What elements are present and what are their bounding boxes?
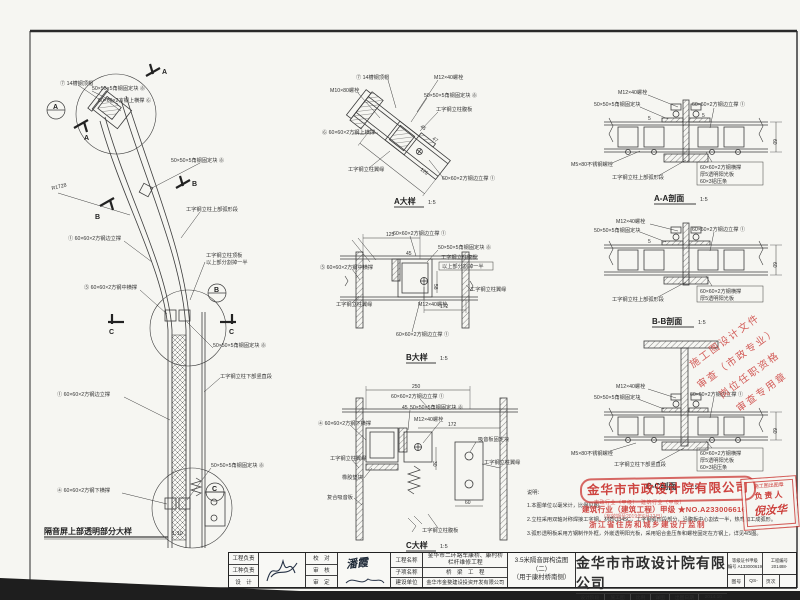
dim-5: 5 <box>702 113 705 119</box>
label: 60×60×2方钢边立撑 ① <box>393 229 446 237</box>
dim-60: 60 <box>771 139 777 145</box>
label-top-rail: 60×60×2方钢上横撑 ⑥ <box>98 96 151 104</box>
notes-header: 说明： <box>527 488 543 496</box>
signature-scribble <box>259 553 306 587</box>
section-letter: B <box>192 181 197 188</box>
check-label: 审 核 <box>306 565 337 577</box>
name-labels-column: 工程名称 子项名称 建设单位 <box>391 553 424 587</box>
strip-cell: 出图日期 <box>670 594 699 600</box>
role-labels-column: 工程负责 工种负责 设 计 <box>229 553 259 587</box>
role-label: 工种负责 <box>229 565 258 577</box>
scanned-drawing-sheet: ⑦ 14槽钢顶帽 50×50×5角钢固定块 ⑧ 60×60×2方钢上横撑 ⑥ R… <box>0 0 800 600</box>
label: 50×50×5角钢固定块 <box>594 393 641 401</box>
sheet-number-strip: 图号 QS- 页次 <box>728 575 796 587</box>
label: 工字钢立柱上部弧形段 <box>612 173 664 181</box>
label: M12×40螺栓 <box>616 217 646 225</box>
label: 橡胶垫块 <box>342 473 364 481</box>
dim-30: 30 <box>431 461 437 467</box>
field-label: 建设单位 <box>391 578 423 587</box>
label-cut-half: 以上部分割掉一半 <box>206 258 248 266</box>
stamp-signature: 倪汝华 <box>743 500 798 520</box>
label: ⑤ 60×60×2方钢中横撑 <box>320 263 373 271</box>
project-name-line1: 金华市二环路车康桥、康村桥 <box>428 553 503 560</box>
figure-title-line3: （用于康村桥南侧） <box>513 574 571 583</box>
label: ④ 60×60×2方钢下横撑 <box>318 419 371 427</box>
certificate-cells: 等级证书甲级 编号 A133000619 工程编号 201488- <box>728 553 796 575</box>
strip-cell: 2014.10 <box>699 594 727 600</box>
label-fix-low: 50×50×5角钢固定块 ⑧ <box>213 341 266 349</box>
section-aa-drawing <box>604 95 782 204</box>
name-values-column: 金华市二环路车康桥、康村桥 栏杆维修工程 桥 梁 工 程 金华市金婺建设投资开发… <box>423 553 508 587</box>
label: M5×80不锈钢螺栓 <box>571 160 614 168</box>
strip-cell <box>780 575 796 587</box>
callout-a: A <box>53 104 58 111</box>
label-arc-seg: 工字钢立柱上部弧形段 <box>186 205 238 213</box>
project-number: 工程编号 201488- <box>763 553 796 574</box>
label: 50×50×5角钢固定块 ⑧ <box>438 243 491 251</box>
label: 60×60×2方钢边立撑 ① <box>391 392 444 400</box>
dim-58: 58 <box>432 284 438 290</box>
signature-column <box>259 553 306 587</box>
detail-b-drawing <box>340 234 493 363</box>
title-block: 工程负责 工种负责 设 计 校 对 审 核 审 定 潘霞 工程名称 子项名称 建… <box>228 552 797 588</box>
drawing-release-stamp: 施工图出图章 负责人 倪汝华 <box>740 475 799 531</box>
stage-strip: 设计阶段 施工图 比例 详图 出图日期 2014.10 <box>576 594 727 600</box>
label: M12×40螺栓 <box>414 415 444 423</box>
section-letter: A <box>162 69 167 76</box>
label: M12×40螺栓 <box>618 88 648 96</box>
label: M10×80螺栓 <box>330 86 360 94</box>
callout-b: B <box>214 287 219 294</box>
label-cap: ⑦ 14槽钢顶帽 <box>60 79 93 87</box>
field-label: 工程名称 <box>391 553 423 568</box>
section-bb-title: B-B剖面 <box>652 316 682 326</box>
detail-a-drawing <box>336 80 454 207</box>
client-name: 金华市金婺建设投资开发有限公司 <box>423 578 507 587</box>
label: 60×60×2方钢边立撑 ① <box>692 225 745 233</box>
dim-60: 60 <box>465 500 471 506</box>
sub-project-name: 桥 梁 工 程 <box>423 568 507 578</box>
figure-title-cell: 3.5米隔音屏构造图 （二） （用于康村桥南侧） <box>508 553 576 587</box>
label: 60×60×2方钢横撑 <box>700 163 741 171</box>
label: 工字钢立柱翼缘 <box>330 454 366 462</box>
section-bb-scale: 1:5 <box>698 320 706 326</box>
detail-a-title: A大样 <box>394 196 416 206</box>
label: 60×3铝压条 <box>700 177 727 185</box>
dim-60: 60 <box>771 262 777 268</box>
label: 工字钢立柱翼缘 <box>336 300 372 308</box>
label-fix-mid: 50×50×5角钢固定块 ⑧ <box>171 156 224 164</box>
elevation-drawing <box>44 64 236 548</box>
dim-172: 172 <box>448 422 457 428</box>
grade-line2: 编号 A133000619 <box>728 564 762 570</box>
label: 工字钢立柱腹板 <box>436 105 473 113</box>
role-label: 设 计 <box>229 576 258 587</box>
dim-45: 45 <box>406 251 412 257</box>
label: M5×80不锈钢螺栓 <box>571 449 614 457</box>
check-labels-column: 校 对 审 核 审 定 <box>306 553 338 587</box>
grade-certificate: 等级证书甲级 编号 A133000619 <box>728 553 762 574</box>
callout-c: C <box>212 486 217 493</box>
label-radius: R1728 <box>51 182 67 192</box>
label: 复合吸音板 <box>327 493 354 501</box>
label: M12×40螺栓 <box>434 73 464 81</box>
detail-b-title: B大样 <box>406 352 428 362</box>
dim-5: 5 <box>648 239 651 245</box>
label: 工字钢立柱腹板 <box>422 526 459 534</box>
section-letter: C <box>109 329 114 336</box>
strip-cell: 图号 <box>728 575 745 587</box>
label: 工字钢立柱上部弧形段 <box>612 295 664 303</box>
label: 以上部分割掉一半 <box>442 262 484 270</box>
label-top-plate: 工字钢立柱顶板 <box>206 251 243 259</box>
label: 工字钢立柱翼缘 <box>470 285 506 293</box>
figure-title-line1: 3.5米隔音屏构造图 <box>515 557 569 566</box>
section-aa-scale: 1:5 <box>700 197 708 203</box>
label-edge-post-low: ① 60×60×2方钢边立撑 <box>57 390 110 398</box>
strip-cell: 施工图 <box>605 594 632 600</box>
company-cell: 金华市市政设计院有限公司 设计阶段 施工图 比例 详图 出图日期 2014.10 <box>576 553 728 587</box>
check-label: 审 定 <box>306 576 337 587</box>
label: 60×60×2方钢边立撑 ① <box>692 100 745 108</box>
check-signature-column: 潘霞 <box>338 553 391 587</box>
label: ⑥ 60×60×2方钢上横撑 <box>322 128 375 136</box>
label: 工字钢立柱下部竖直段 <box>614 460 666 468</box>
strip-cell: QS- <box>745 575 762 587</box>
label: 60×60×2方钢边立撑 ① <box>442 174 495 182</box>
label: 50×50×5角钢固定块 <box>594 226 641 234</box>
check-label: 校 对 <box>306 553 337 565</box>
label: 50×50×5角钢固定块 ⑧ <box>424 91 477 99</box>
label-fix-top: 50×50×5角钢固定块 ⑧ <box>92 84 145 92</box>
section-letter: B <box>95 214 100 221</box>
detail-c-title: C大样 <box>406 540 428 550</box>
elevation-texts: ⑦ 14槽钢顶帽 50×50×5角钢固定块 ⑧ 60×60×2方钢上横撑 ⑥ R… <box>44 69 272 537</box>
section-aa-title: A-A剖面 <box>654 193 684 203</box>
dim-5: 5 <box>648 116 651 122</box>
field-label: 子项名称 <box>391 568 423 578</box>
label: 50×50×5角钢固定块 <box>594 100 641 108</box>
role-label: 工程负责 <box>229 553 258 565</box>
label-edge-post-top: ① 60×60×2方钢边立撑 <box>68 234 121 242</box>
detail-c-scale: 1:5 <box>440 544 448 550</box>
section-letter: C <box>229 329 234 336</box>
label: ⑦ 14槽钢顶帽 <box>356 73 389 81</box>
dim-172: 172 <box>440 304 449 310</box>
label-mid-rail: ⑤ 60×60×2方钢中横撑 <box>84 283 137 291</box>
label-fix-bot: 50×50×5角钢固定块 ⑧ <box>211 461 264 469</box>
project-name: 金华市二环路车康桥、康村桥 栏杆维修工程 <box>423 553 507 568</box>
label: 60×60×2方钢边立撑 ① <box>396 330 449 338</box>
label-bot-rail: ④ 60×60×2方钢下横撑 <box>57 486 110 494</box>
section-letter: A <box>84 135 89 142</box>
strip-cell: 比例 <box>631 594 651 600</box>
label: 60×60×2方钢横撑 <box>700 287 741 295</box>
strip-cell: 设计阶段 <box>576 594 605 600</box>
label: 工字钢立柱腹板 <box>441 253 478 261</box>
label: 厚5透明阳光板 <box>700 170 735 178</box>
issuer-line: 浙江省住房和城乡建设厅监制 <box>589 519 706 530</box>
elevation-title: 隔音屏上部透明部分大样 <box>44 526 132 536</box>
label: 50×50×5角钢固定块 ⑧ <box>410 403 463 411</box>
label: 工字钢立柱翼缘 <box>484 458 520 466</box>
project-name-line2: 栏杆维修工程 <box>448 560 483 567</box>
label-straight-seg: 工字钢立柱下部竖直段 <box>220 372 272 380</box>
note-3: 3.弧形透明板采用方钢制作外框，外嵌透明阳光板，采用铝合金压条和螺栓固定在方钢上… <box>527 529 762 537</box>
label: 工字钢立柱翼缘 <box>348 165 384 173</box>
detail-b-texts: 125 60×60×2方钢边立撑 ① 50×50×5角钢固定块 ⑧ 工字钢立柱腹… <box>320 229 506 362</box>
project-number-value: 201488- <box>771 564 787 570</box>
dim-45: 45 <box>402 405 408 411</box>
strip-cell: 页次 <box>763 575 780 587</box>
detail-a-scale: 1:5 <box>428 200 436 206</box>
label: 厚5透明阳光板 <box>700 294 735 302</box>
dim-250: 250 <box>412 384 421 390</box>
cert-cell: 等级证书甲级 编号 A133000619 工程编号 201488- 图号 QS-… <box>728 553 796 587</box>
design-company-name: 金华市市政设计院有限公司 <box>576 553 727 594</box>
detail-b-scale: 1:5 <box>440 356 448 362</box>
label: 吸音板固定块 <box>478 435 510 443</box>
elevation-scale: 1:10 <box>172 531 183 537</box>
approver-scribble <box>338 553 391 589</box>
strip-cell: 详图 <box>651 594 671 600</box>
